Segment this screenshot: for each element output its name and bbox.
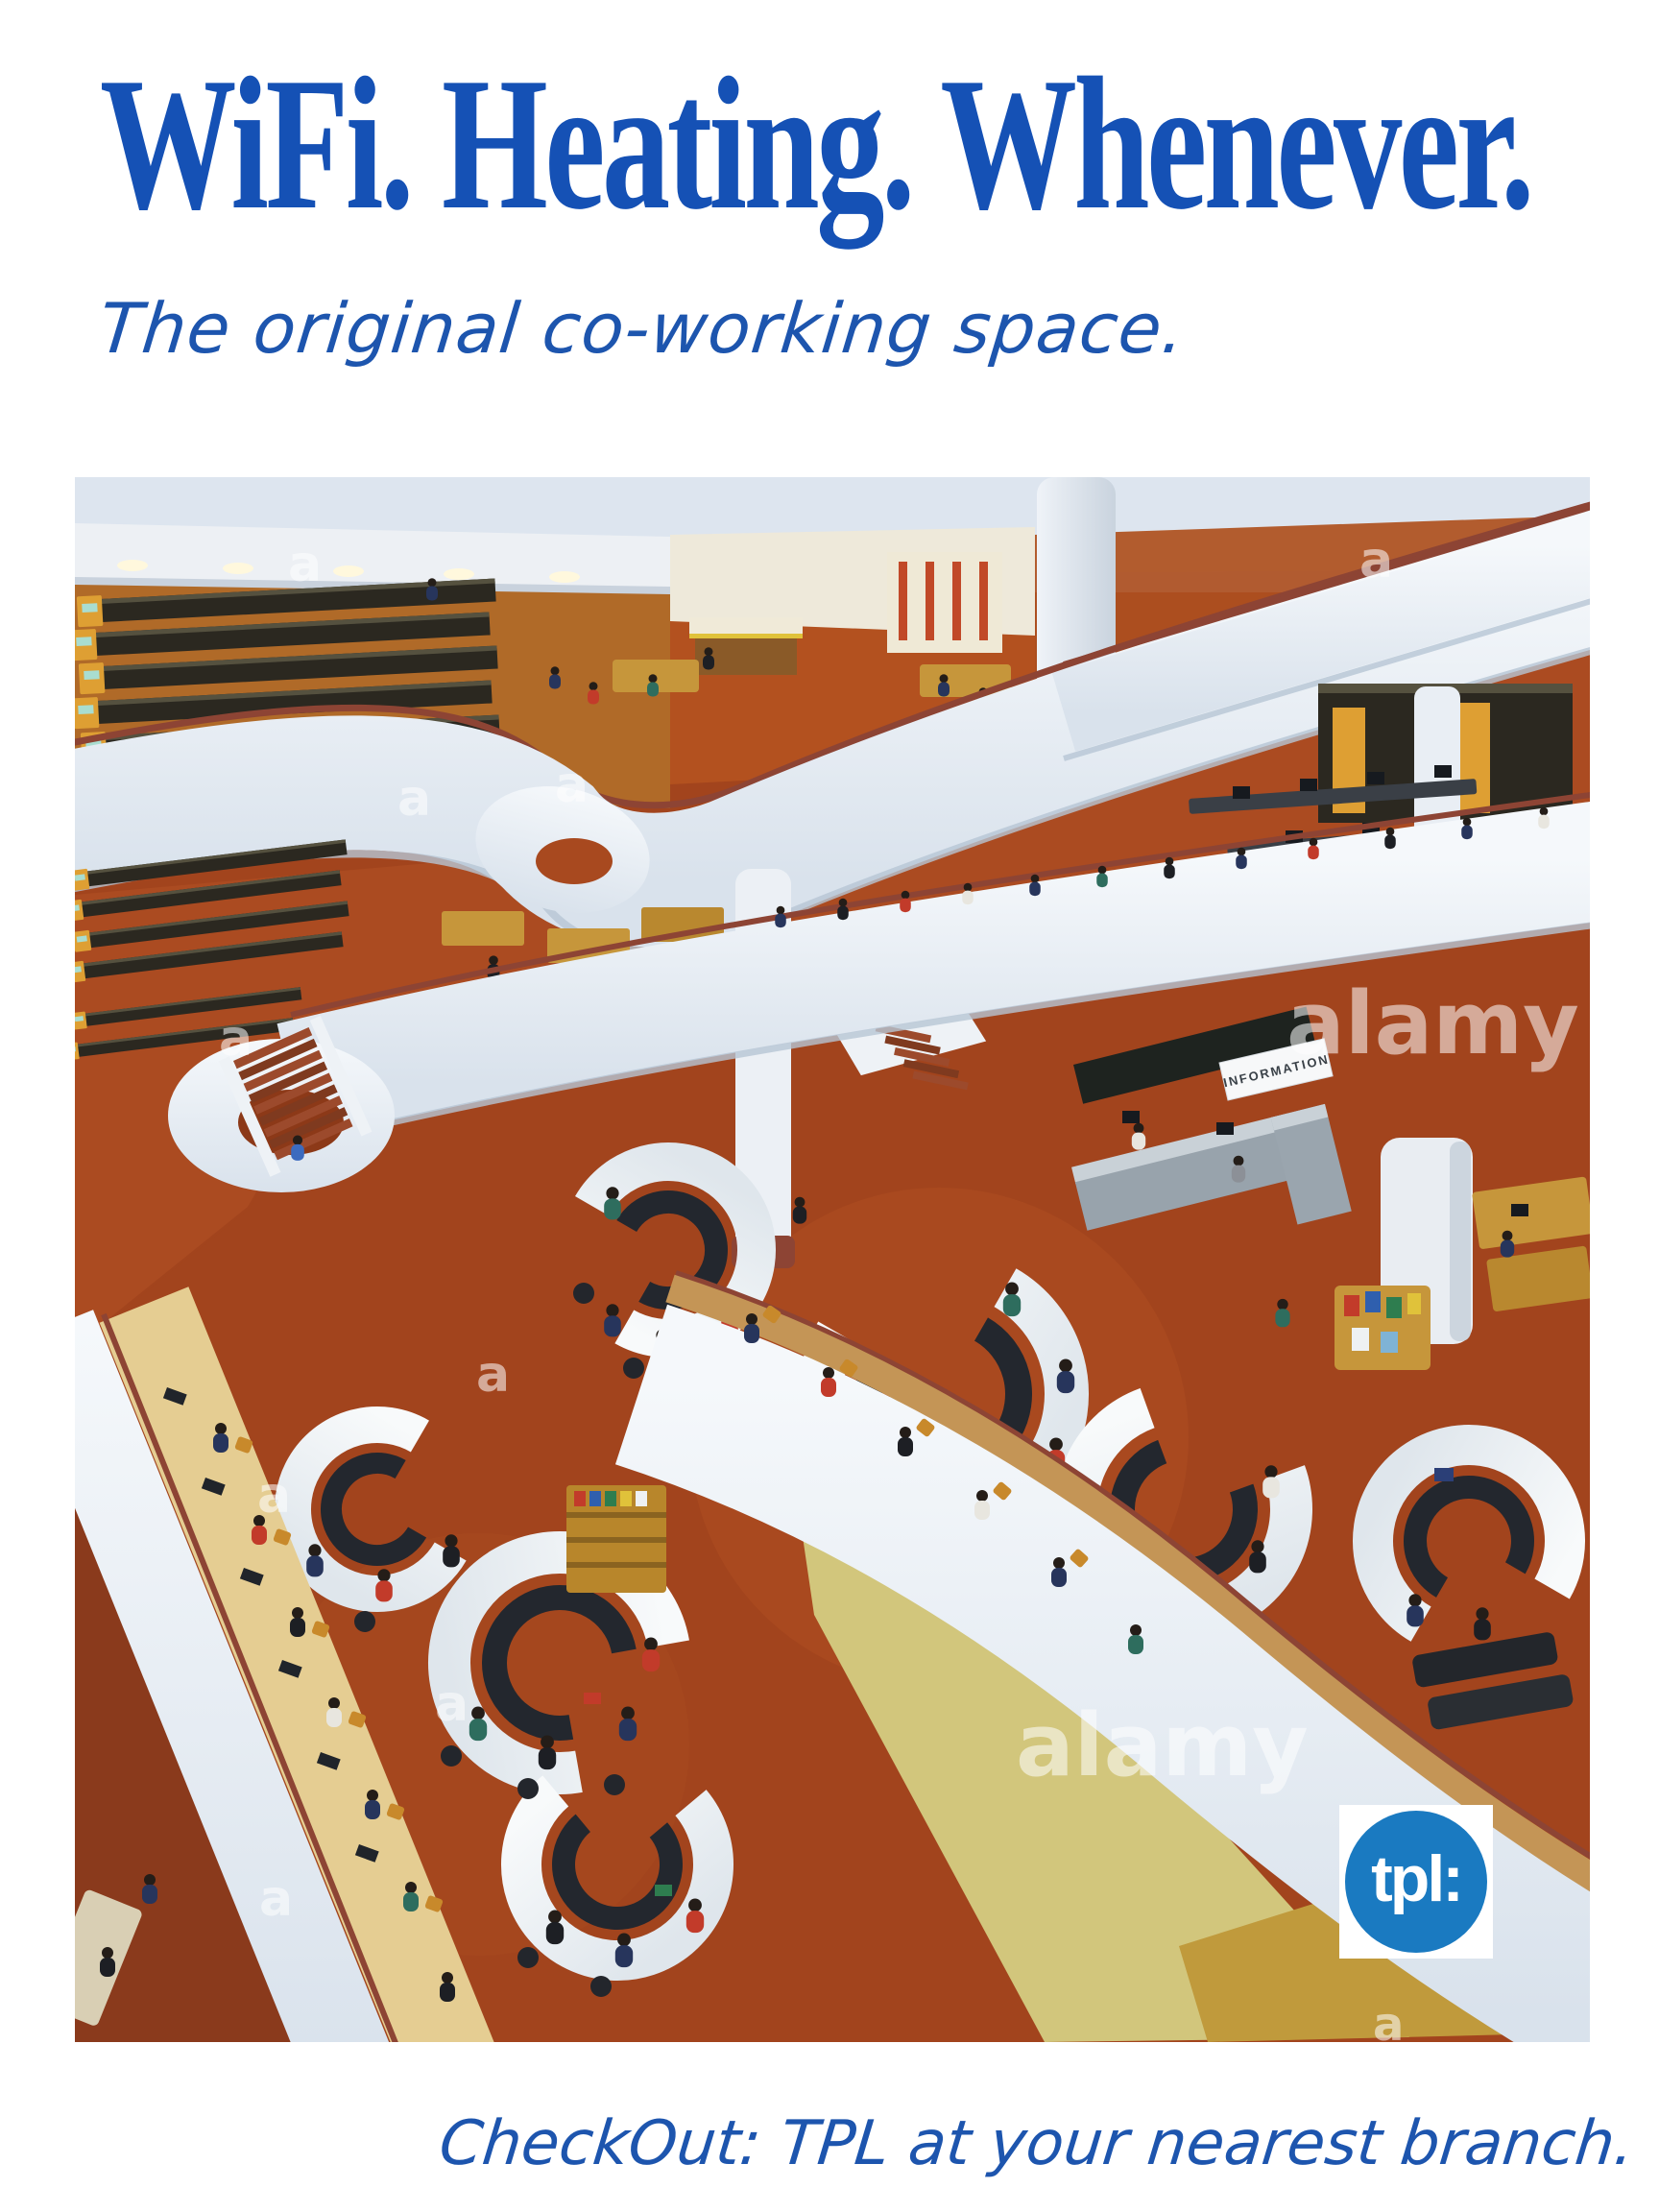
svg-text:a: a (219, 1010, 252, 1068)
tpl-logo-circle: tpl: (1345, 1811, 1487, 1953)
footer-tagline: CheckOut: TPL at your nearest branch. (436, 2108, 1638, 2179)
media-kiosk (566, 1485, 666, 1593)
svg-text:a: a (476, 1346, 510, 1404)
poster-page: WiFi. Heating. Whenever. The original co… (0, 0, 1659, 2212)
svg-text:a: a (435, 1675, 469, 1733)
svg-text:a: a (257, 1467, 291, 1525)
tpl-logo-text: tpl: (1371, 1841, 1461, 1916)
tpl-logo: tpl: (1339, 1805, 1493, 1959)
svg-text:a: a (397, 770, 431, 828)
subheadline: The original co-working space. (95, 288, 1190, 369)
svg-text:a: a (288, 536, 322, 593)
svg-text:a: a (1359, 532, 1393, 589)
svg-text:a: a (259, 1870, 293, 1928)
alamy-watermark: alamy (1016, 1695, 1309, 1796)
headline: WiFi. Heating. Whenever. (100, 44, 1531, 244)
svg-text:a: a (555, 757, 589, 814)
svg-text:a: a (1373, 1998, 1404, 2042)
alamy-watermark: alamy (1286, 974, 1579, 1074)
library-photo: INFORMATION (75, 477, 1590, 2042)
